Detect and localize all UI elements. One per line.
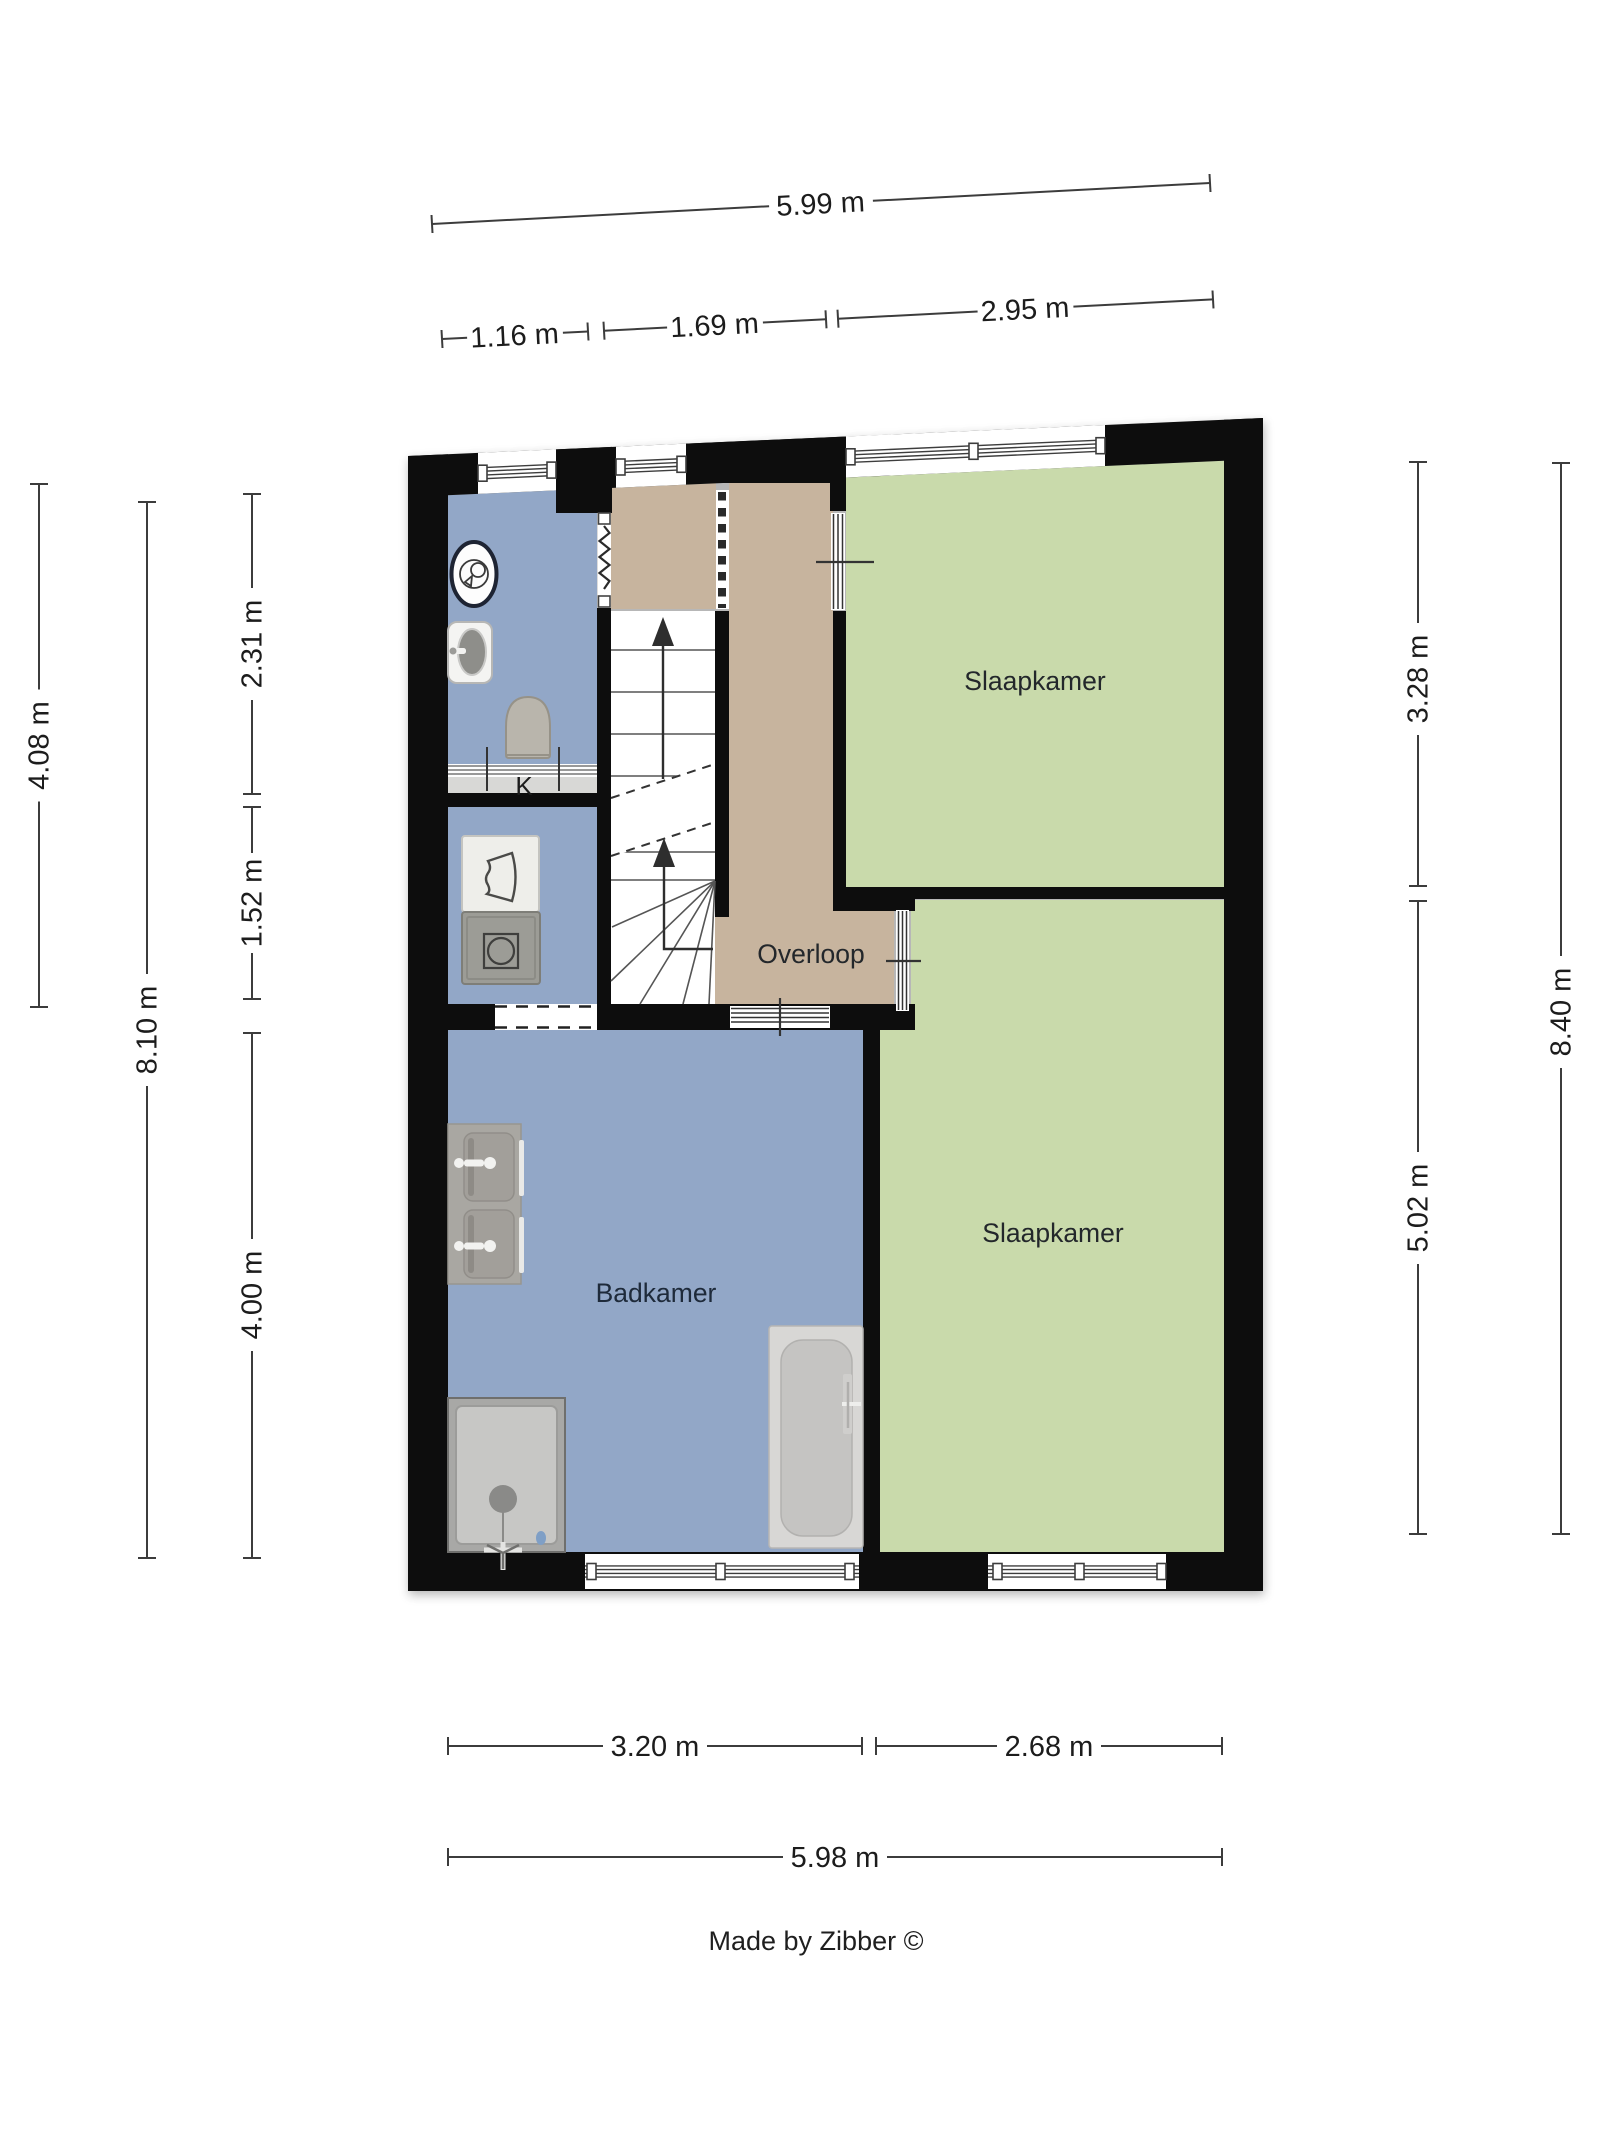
svg-text:8.10 m: 8.10 m	[132, 986, 164, 1075]
svg-text:2.95 m: 2.95 m	[980, 292, 1070, 329]
svg-text:K: K	[515, 771, 533, 801]
svg-text:5.02 m: 5.02 m	[1403, 1164, 1435, 1253]
svg-text:Slaapkamer: Slaapkamer	[982, 1218, 1124, 1248]
svg-text:8.40 m: 8.40 m	[1546, 968, 1578, 1057]
svg-text:Overloop: Overloop	[757, 939, 865, 969]
svg-text:1.16 m: 1.16 m	[469, 318, 559, 355]
svg-text:Made by Zibber ©: Made by Zibber ©	[709, 1926, 924, 1956]
svg-text:Slaapkamer: Slaapkamer	[964, 666, 1106, 696]
svg-text:5.98 m: 5.98 m	[791, 1842, 880, 1874]
svg-text:3.28 m: 3.28 m	[1403, 635, 1435, 724]
svg-text:4.00 m: 4.00 m	[237, 1251, 269, 1340]
svg-text:1.69 m: 1.69 m	[669, 308, 759, 345]
svg-text:2.68 m: 2.68 m	[1005, 1731, 1094, 1763]
svg-text:2.31 m: 2.31 m	[237, 600, 269, 689]
svg-text:5.99 m: 5.99 m	[775, 186, 865, 223]
svg-text:3.20 m: 3.20 m	[611, 1731, 700, 1763]
svg-text:Badkamer: Badkamer	[596, 1278, 717, 1308]
svg-text:1.52 m: 1.52 m	[237, 859, 269, 948]
svg-text:4.08 m: 4.08 m	[24, 701, 56, 790]
